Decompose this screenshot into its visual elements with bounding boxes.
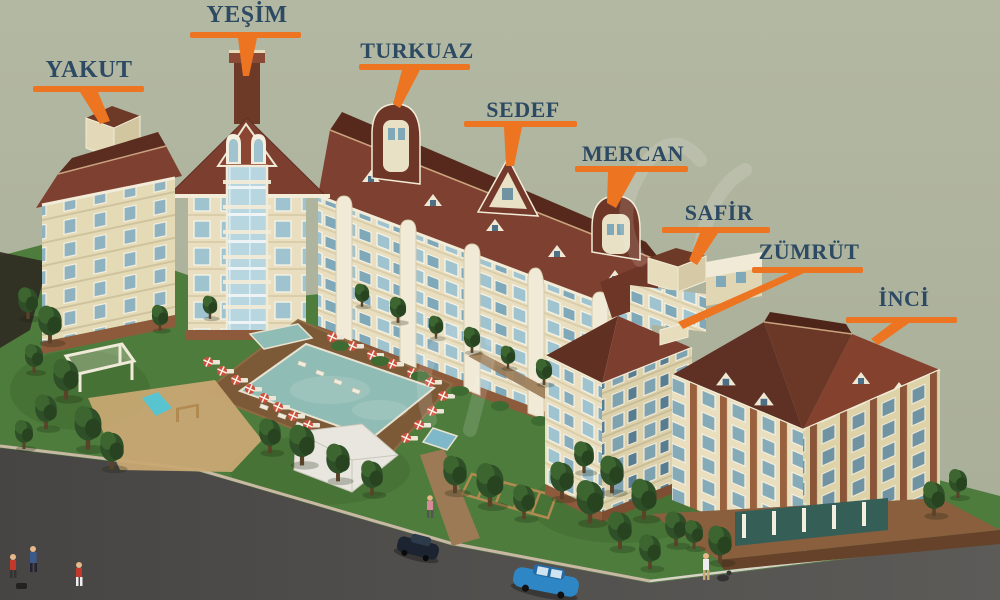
label-text: ZÜMRÜT xyxy=(759,239,860,264)
stroller xyxy=(16,583,27,589)
label-underline xyxy=(752,267,863,273)
label-underline xyxy=(846,317,957,323)
label-text: YEŞİM xyxy=(206,2,287,28)
label-underline xyxy=(359,64,470,70)
label-text: İNCİ xyxy=(879,286,930,311)
label-text: SAFİR xyxy=(685,200,754,225)
label-underline xyxy=(190,32,301,38)
label-underline xyxy=(662,227,770,233)
site-plan-rendering: YEŞİM YAKUT TURKUAZ SEDEF MERCAN SAFİR xyxy=(0,0,1000,600)
label-underline xyxy=(33,86,144,92)
label-text: TURKUAZ xyxy=(360,38,474,63)
scene-canvas: YEŞİM YAKUT TURKUAZ SEDEF MERCAN SAFİR xyxy=(0,0,1000,600)
turkuaz-roof-peak xyxy=(372,104,420,184)
label-text: YAKUT xyxy=(46,57,133,83)
label-text: MERCAN xyxy=(582,141,684,166)
label-text: SEDEF xyxy=(486,97,559,122)
label-underline xyxy=(575,166,688,172)
